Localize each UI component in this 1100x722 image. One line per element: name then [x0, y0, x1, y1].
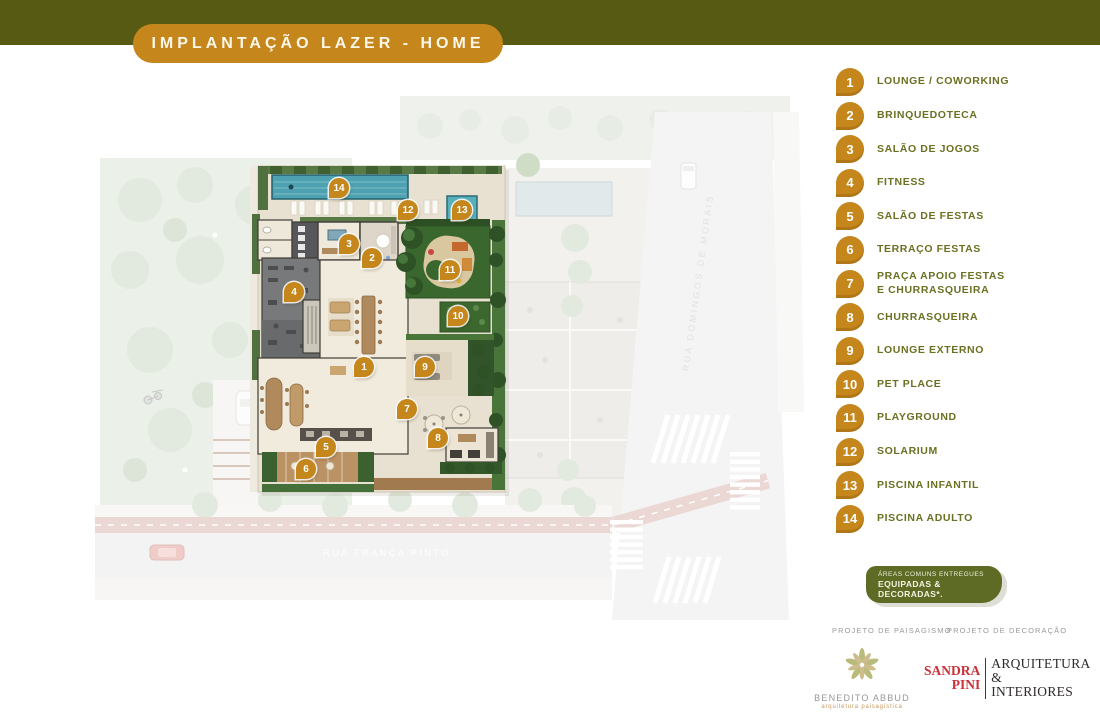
legend-label-3: SALÃO DE JOGOS [877, 143, 980, 156]
benedito-abbud-logo: BENEDITO ABBUD arquitetura paisagística [812, 645, 912, 710]
legend-item-12: 12 SOLARIUM [836, 438, 1086, 466]
legend-marker-13: 13 [836, 471, 864, 499]
landscape-firm-name: BENEDITO ABBUD [812, 693, 912, 703]
legend-label-13: PISCINA INFANTIL [877, 479, 979, 492]
legend-item-13: 13 PISCINA INFANTIL [836, 471, 1086, 499]
logo-divider [985, 658, 986, 699]
legend-marker-11: 11 [836, 404, 864, 432]
plan-marker-14: 14 [329, 178, 349, 198]
legend-item-8: 8 CHURRASQUEIRA [836, 303, 1086, 331]
decor-firm-name: SANDRA PINI [924, 664, 980, 692]
legend-item-9: 9 LOUNGE EXTERNO [836, 337, 1086, 365]
legend-marker-7: 7 [836, 270, 864, 298]
street-name-horizontal: RUA FRANÇA PINTO [323, 548, 450, 558]
landscape-project-heading: PROJETO DE PAISAGISMO [832, 626, 952, 635]
plan-marker-7: 7 [397, 399, 417, 419]
plan-marker-6: 6 [296, 459, 316, 479]
sandra-pini-logo: SANDRA PINI ARQUITETURA & INTERIORES [924, 657, 1100, 700]
plan-marker-11: 11 [440, 260, 460, 280]
badge-line-1: ÁREAS COMUNS ENTREGUES [878, 571, 1002, 578]
legend-label-2: BRINQUEDOTECA [877, 109, 978, 122]
flower-icon [842, 645, 882, 685]
legend-label-1: LOUNGE / COWORKING [877, 75, 1009, 88]
plan-marker-4: 4 [284, 282, 304, 302]
legend-marker-14: 14 [836, 505, 864, 533]
legend-label-11: PLAYGROUND [877, 411, 957, 424]
legend-marker-2: 2 [836, 102, 864, 130]
plan-marker-10: 10 [448, 306, 468, 326]
legend-label-10: PET PLACE [877, 378, 941, 391]
delivered-areas-badge: ÁREAS COMUNS ENTREGUES EQUIPADAS & DECOR… [866, 566, 1002, 603]
title-banner: IMPLANTAÇÃO LAZER - HOME [133, 24, 503, 63]
page-title: IMPLANTAÇÃO LAZER - HOME [151, 35, 484, 53]
plan-marker-2: 2 [362, 248, 382, 268]
plan-marker-5: 5 [316, 437, 336, 457]
plan-marker-13: 13 [452, 200, 472, 220]
legend-item-11: 11 PLAYGROUND [836, 404, 1086, 432]
decor-firm-desc: ARQUITETURA & INTERIORES [991, 657, 1100, 700]
decor-project-heading: PROJETO DE DECORAÇÃO [947, 626, 1067, 635]
legend-marker-9: 9 [836, 337, 864, 365]
plan-marker-9: 9 [415, 357, 435, 377]
legend-marker-10: 10 [836, 370, 864, 398]
plan-marker-3: 3 [339, 234, 359, 254]
legend-marker-4: 4 [836, 169, 864, 197]
legend-item-7: 7 PRAÇA APOIO FESTAS E CHURRASQUEIRA [836, 270, 1086, 298]
legend-label-4: FITNESS [877, 176, 926, 189]
legend-label-6: TERRAÇO FESTAS [877, 243, 981, 256]
plan-marker-1: 1 [354, 357, 374, 377]
legend-label-8: CHURRASQUEIRA [877, 311, 978, 324]
legend-marker-1: 1 [836, 68, 864, 96]
legend-marker-12: 12 [836, 438, 864, 466]
legend-item-6: 6 TERRAÇO FESTAS [836, 236, 1086, 264]
legend-marker-8: 8 [836, 303, 864, 331]
legend-label-7: PRAÇA APOIO FESTAS E CHURRASQUEIRA [877, 270, 1005, 296]
legend-item-10: 10 PET PLACE [836, 370, 1086, 398]
legend-item-5: 5 SALÃO DE FESTAS [836, 202, 1086, 230]
landscape-firm-subtitle: arquitetura paisagística [812, 704, 912, 710]
legend-item-2: 2 BRINQUEDOTECA [836, 102, 1086, 130]
legend-label-12: SOLARIUM [877, 445, 938, 458]
legend-marker-6: 6 [836, 236, 864, 264]
legend-label-14: PISCINA ADULTO [877, 512, 973, 525]
legend-marker-5: 5 [836, 202, 864, 230]
legend-label-9: LOUNGE EXTERNO [877, 344, 984, 357]
legend-item-14: 14 PISCINA ADULTO [836, 505, 1086, 533]
legend-marker-3: 3 [836, 135, 864, 163]
legend: 1 LOUNGE / COWORKING 2 BRINQUEDOTECA 3 S… [836, 68, 1086, 538]
badge-line-2: EQUIPADAS & DECORADAS*. [878, 579, 1002, 599]
plan-marker-12: 12 [398, 200, 418, 220]
legend-item-3: 3 SALÃO DE JOGOS [836, 135, 1086, 163]
legend-label-5: SALÃO DE FESTAS [877, 210, 984, 223]
legend-item-1: 1 LOUNGE / COWORKING [836, 68, 1086, 96]
page: RUA DOMINGOS DE MORAIS RUA F [0, 0, 1100, 722]
plan-marker-8: 8 [428, 428, 448, 448]
legend-item-4: 4 FITNESS [836, 169, 1086, 197]
